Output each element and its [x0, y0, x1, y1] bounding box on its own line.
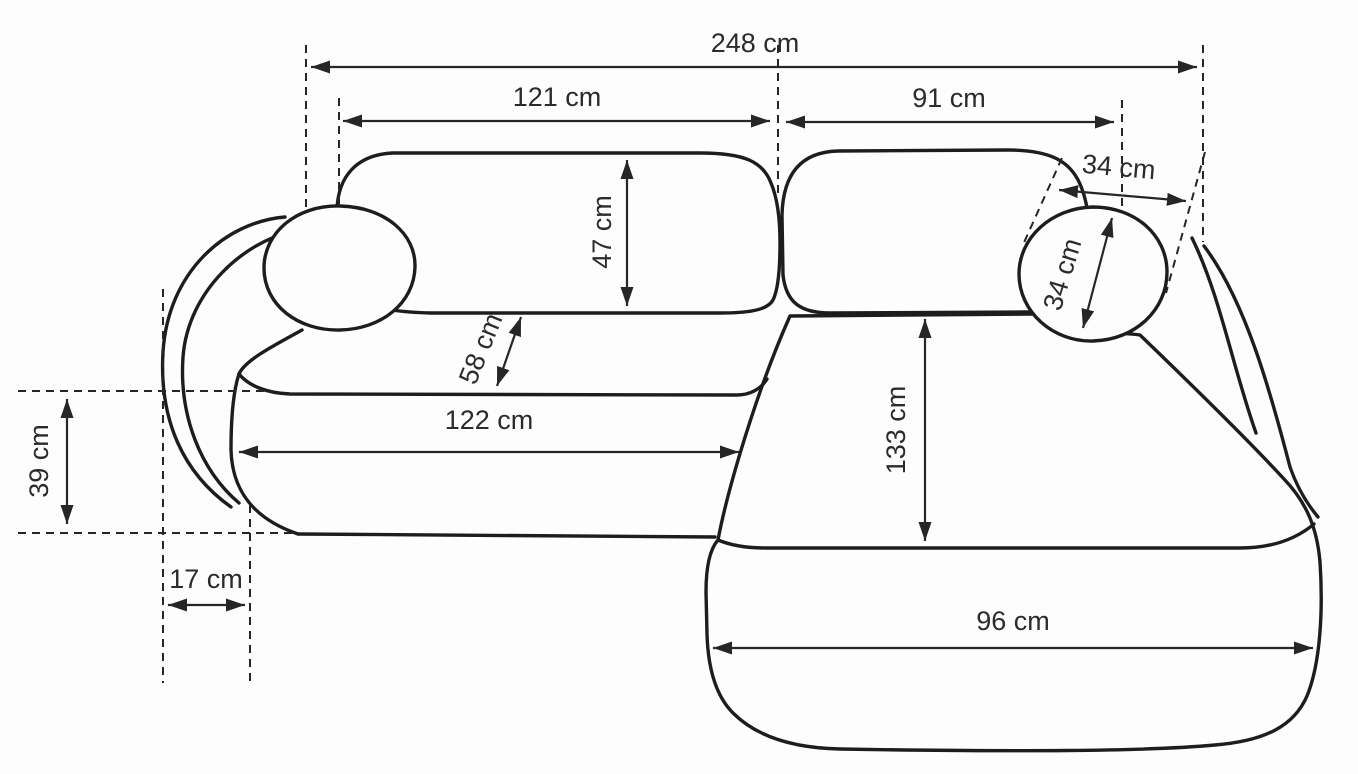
dim-armrest-side-height: 39 cm — [24, 399, 67, 524]
dim-total-width-label: 248 cm — [711, 28, 800, 58]
dim-armrest-front-label: 17 cm — [169, 564, 243, 594]
sofa-outline — [163, 150, 1322, 751]
dim-chaise-depth-label: 133 cm — [881, 386, 911, 475]
left-armrest-front-edge — [231, 330, 302, 534]
sofa-dimension-diagram: 248 cm 121 cm 91 cm 47 cm 58 cm 34 cm 34… — [0, 0, 1358, 774]
dim-left-section-label: 121 cm — [513, 82, 602, 112]
dim-chaise-width-label: 96 cm — [976, 606, 1050, 636]
dim-seat-gap-depth: 58 cm — [453, 309, 521, 388]
dim-armrest-top-label: 34 cm — [1081, 149, 1157, 185]
extension-line-armrest-diag-right — [1166, 152, 1205, 293]
left-seat — [239, 374, 767, 537]
dim-seat-width-label: 122 cm — [445, 405, 534, 435]
right-armrest-cushion — [1019, 207, 1167, 341]
diagram-svg: 248 cm 121 cm 91 cm 47 cm 58 cm 34 cm 34… — [0, 0, 1358, 774]
dim-total-width: 248 cm — [311, 28, 1197, 67]
chaise-body — [706, 314, 1321, 751]
dim-armrest-front-width: 17 cm — [168, 564, 245, 605]
seat-bottom-seam — [298, 534, 715, 537]
dim-armrest-side-label: 39 cm — [24, 424, 54, 498]
dim-seat-width: 122 cm — [239, 405, 739, 452]
dim-right-section-width: 91 cm — [786, 83, 1114, 122]
dim-left-section-width: 121 cm — [343, 82, 770, 121]
dim-right-section-label: 91 cm — [912, 83, 986, 113]
seat-top-seam — [239, 374, 767, 395]
dim-backrest-depth-label: 47 cm — [587, 195, 617, 269]
left-armrest-cushion — [264, 206, 415, 330]
